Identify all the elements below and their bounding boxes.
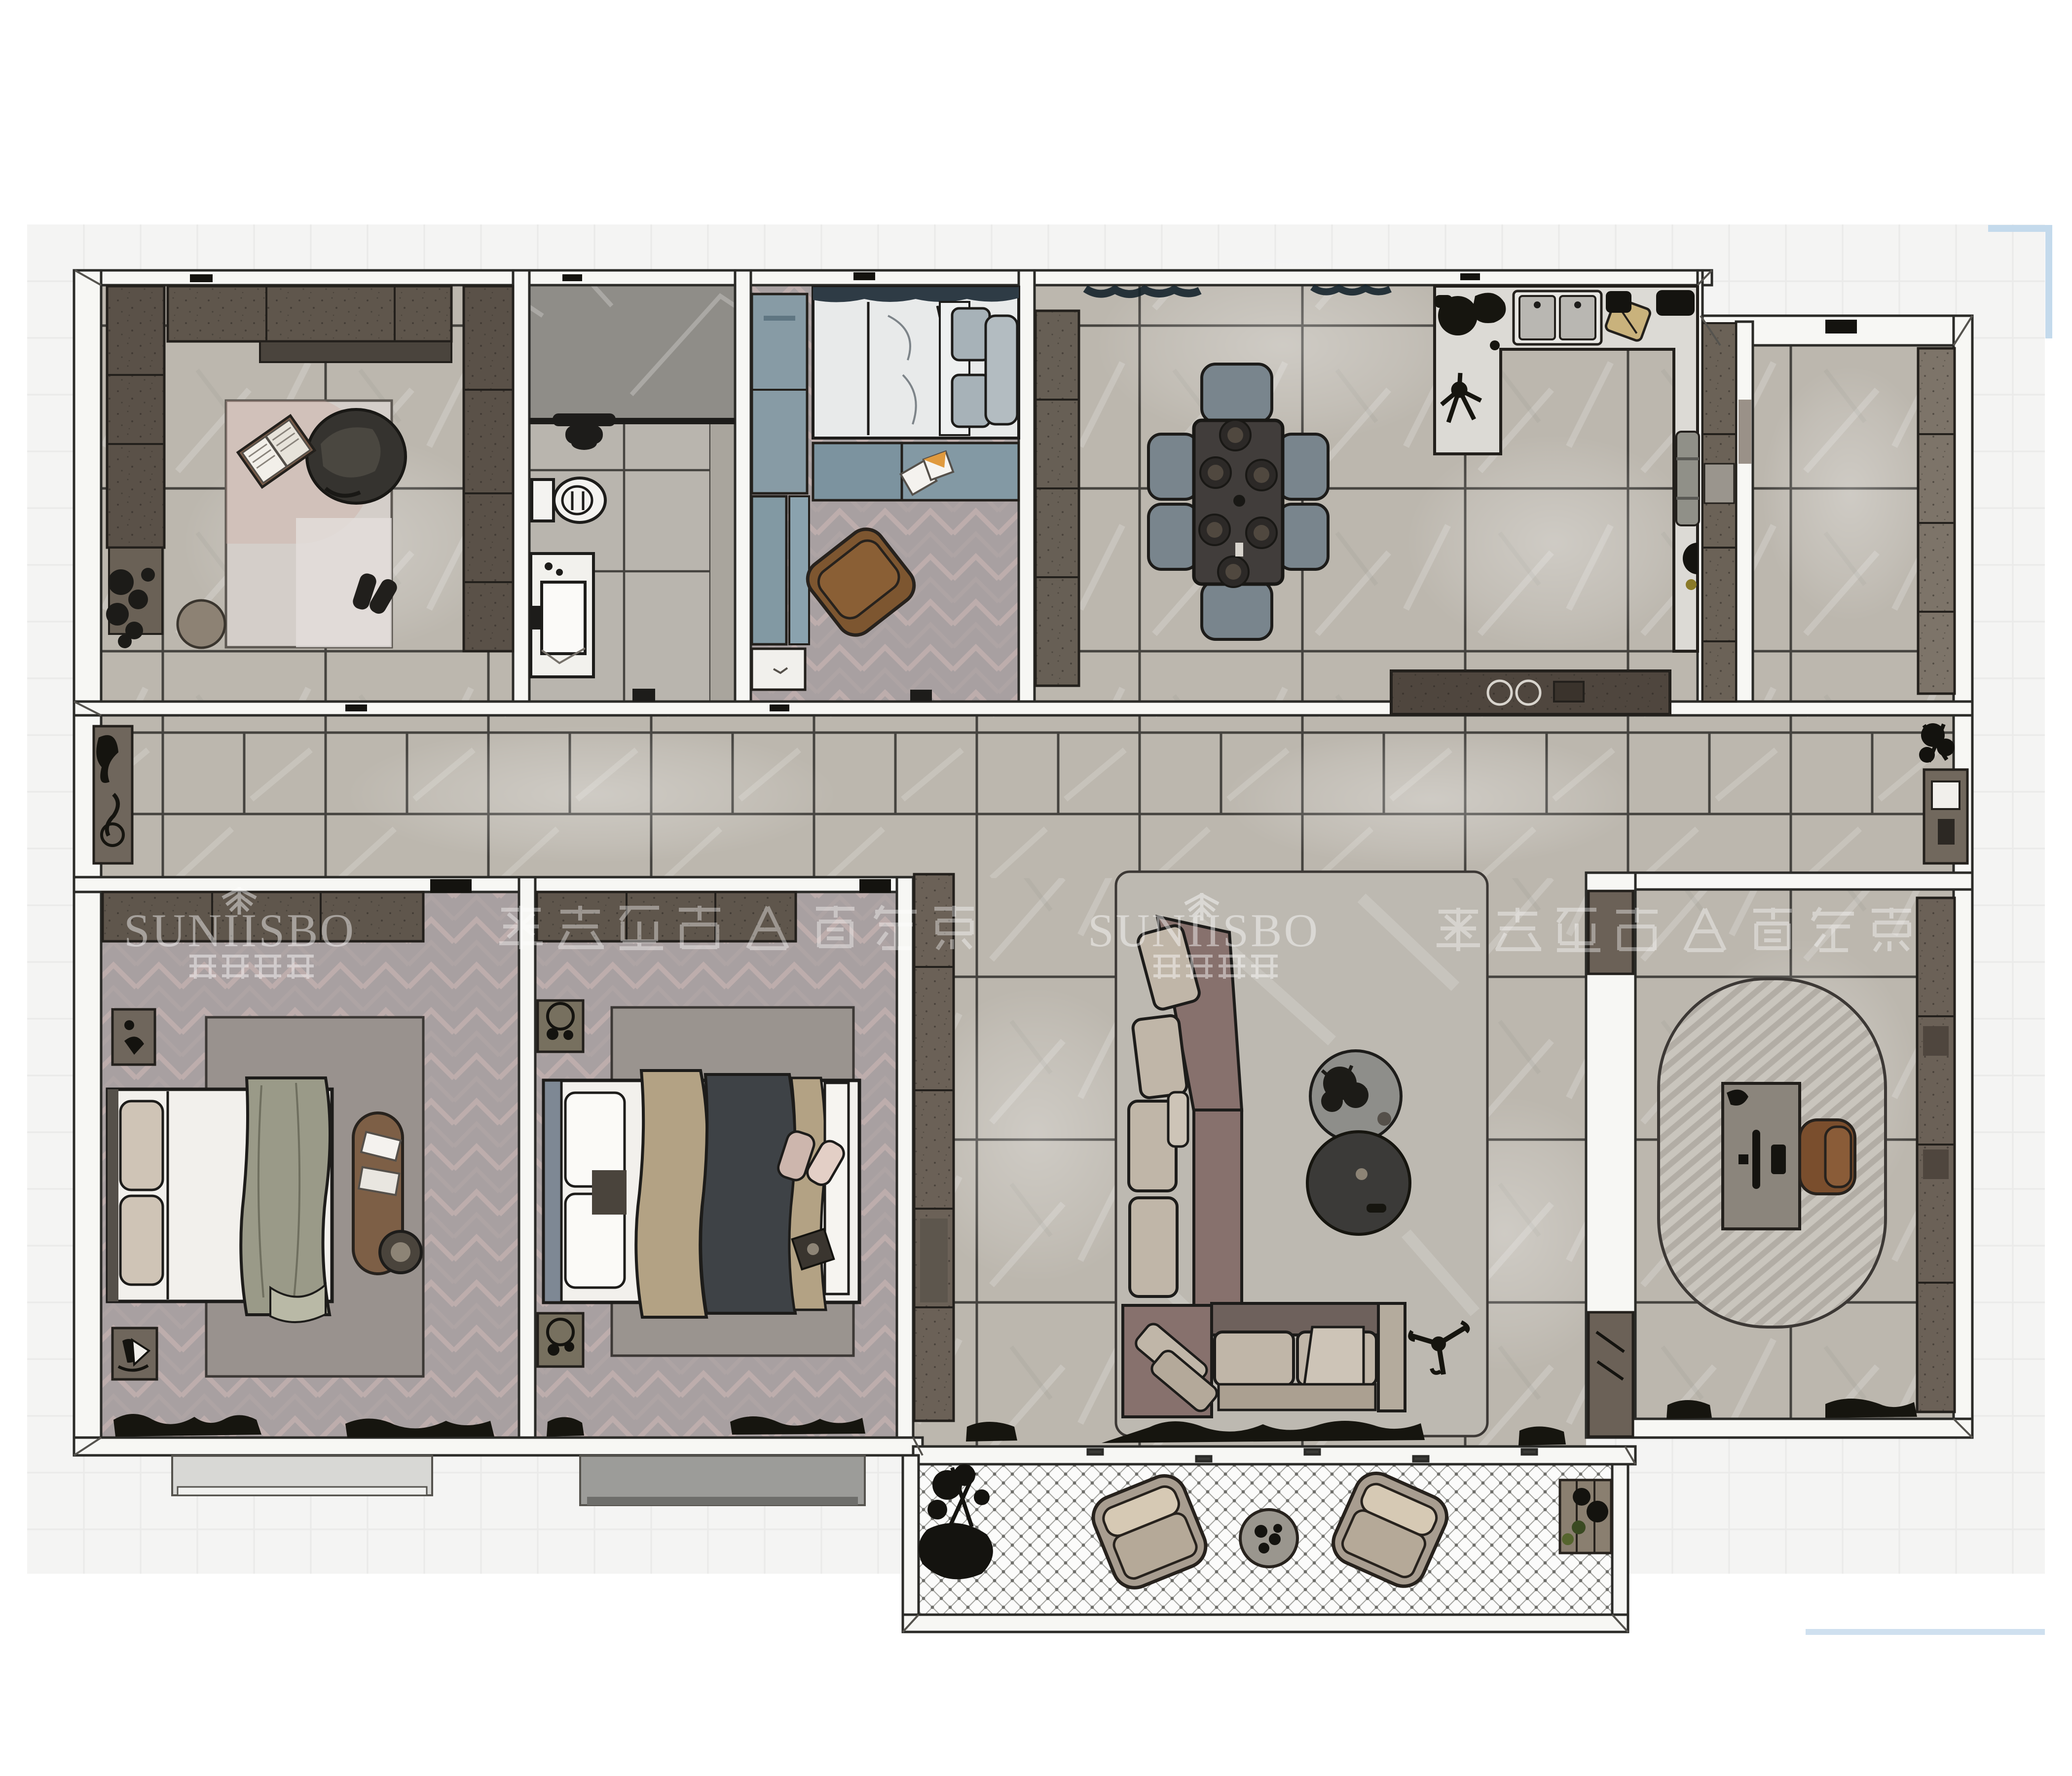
svg-text:SUNIISBO: SUNIISBO: [1088, 904, 1320, 957]
svg-text:SUNIISBO: SUNIISBO: [124, 904, 356, 957]
